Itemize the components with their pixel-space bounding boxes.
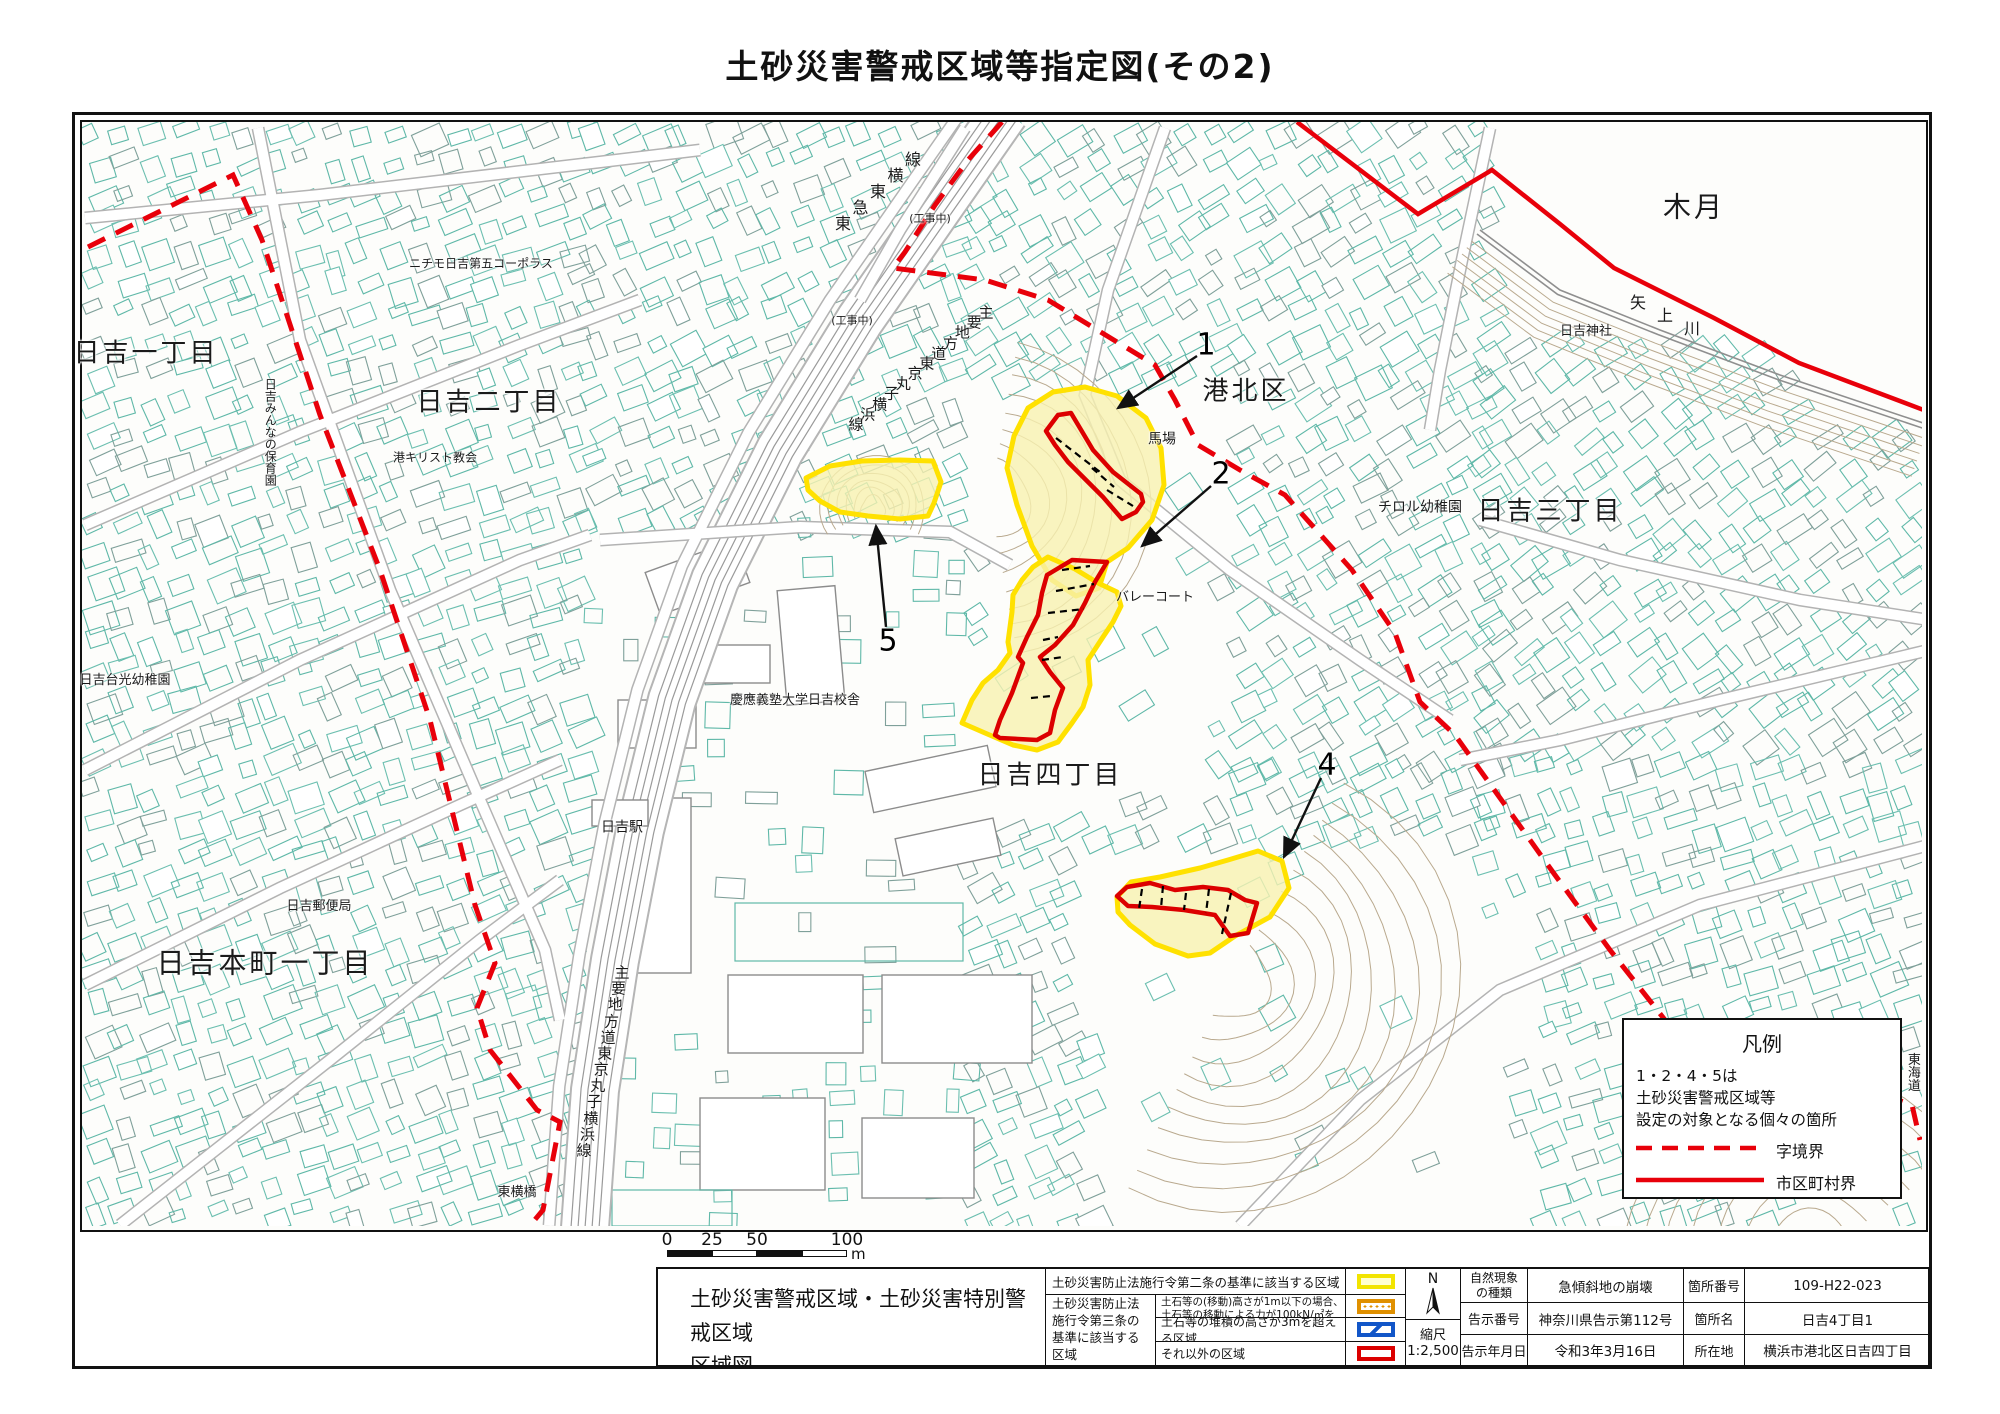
document-name-line1: 土砂災害警戒区域・土砂災害特別警戒区域 <box>690 1283 1045 1350</box>
legend-note-line3: 設定の対象となる個々の箇所 <box>1636 1108 1837 1130</box>
meta-label-notice-number: 告示番号 <box>1460 1302 1527 1334</box>
legend-note-line2: 土砂災害警戒区域等 <box>1636 1086 1776 1108</box>
title-block-table: 土砂災害警戒区域・土砂災害特別警戒区域 区域図 土砂災害防止法施行令第二条の基準… <box>656 1267 1930 1367</box>
meta-value-notice-date: 令和3年3月16日 <box>1527 1334 1683 1365</box>
legend-dashed-label: 字境界 <box>1776 1138 1824 1162</box>
meta-value-notice-number: 神奈川県告示第112号 <box>1527 1302 1683 1334</box>
legend-table-row1-text: 土砂災害防止法施行令第二条の基準に該当する区域 <box>1045 1269 1345 1294</box>
map-sheet-page: 土砂災害警戒区域等指定図(その2) <box>0 0 2000 1414</box>
legend-table-row2-text: 土石等の(移動)高さが1m以下の場合、 土石等の移動による力が100kN/㎡を超… <box>1155 1294 1345 1317</box>
legend-solid-label: 市区町村界 <box>1776 1170 1856 1194</box>
meta-value-site-name: 日吉4丁目1 <box>1744 1302 1930 1334</box>
meta-label-notice-date: 告示年月日 <box>1460 1334 1527 1365</box>
meta-value-site-number: 109-H22-023 <box>1744 1269 1930 1302</box>
legend-table-row3-text: 土石等の堆積の高さが3mを超える区域 <box>1155 1317 1345 1341</box>
north-arrow-icon <box>1425 1287 1441 1315</box>
meta-label-site-name: 箇所名 <box>1683 1302 1744 1334</box>
scale-tick-0: 0 <box>662 1230 673 1250</box>
page-title: 土砂災害警戒区域等指定図(その2) <box>0 40 2000 88</box>
legend-title: 凡例 <box>1624 1028 1900 1057</box>
document-name-cell: 土砂災害警戒区域・土砂災害特別警戒区域 区域図 <box>658 1269 1045 1365</box>
scale-unit: m <box>851 1245 866 1263</box>
legend-table-group-label: 土砂災害防止法施行令第三条の基準に該当する区域 <box>1052 1296 1144 1364</box>
legend-table-row4-text: それ以外の区域 <box>1155 1341 1345 1365</box>
meta-value-location: 横浜市港北区日吉四丁目 <box>1744 1334 1930 1365</box>
scale-label: 縮尺 <box>1406 1320 1460 1343</box>
legend-note-line1: 1・2・4・5は <box>1636 1064 1737 1086</box>
scale-tick-25: 25 <box>701 1230 723 1250</box>
scale-tick-50: 50 <box>746 1230 768 1250</box>
meta-label-location: 所在地 <box>1683 1334 1744 1365</box>
swatch-orange-special <box>1357 1299 1395 1314</box>
meta-label-site-number: 箇所番号 <box>1683 1269 1744 1302</box>
map-legend-box: 凡例 1・2・4・5は 土砂災害警戒区域等 設定の対象となる個々の箇所 字境界 … <box>1622 1018 1902 1199</box>
swatch-yellow-warning <box>1357 1274 1395 1289</box>
legend-line-samples <box>1634 1138 1769 1188</box>
swatch-blue-special <box>1357 1322 1395 1337</box>
document-name-line2: 区域図 <box>690 1350 1045 1365</box>
scale-value: 1:2,500 <box>1406 1343 1460 1359</box>
swatch-red-special <box>1357 1346 1395 1361</box>
compass-n-label: N <box>1406 1269 1460 1287</box>
meta-value-phenomenon: 急傾斜地の崩壊 <box>1527 1269 1683 1302</box>
meta-label-phenomenon: 自然現象の種類 <box>1466 1271 1522 1300</box>
